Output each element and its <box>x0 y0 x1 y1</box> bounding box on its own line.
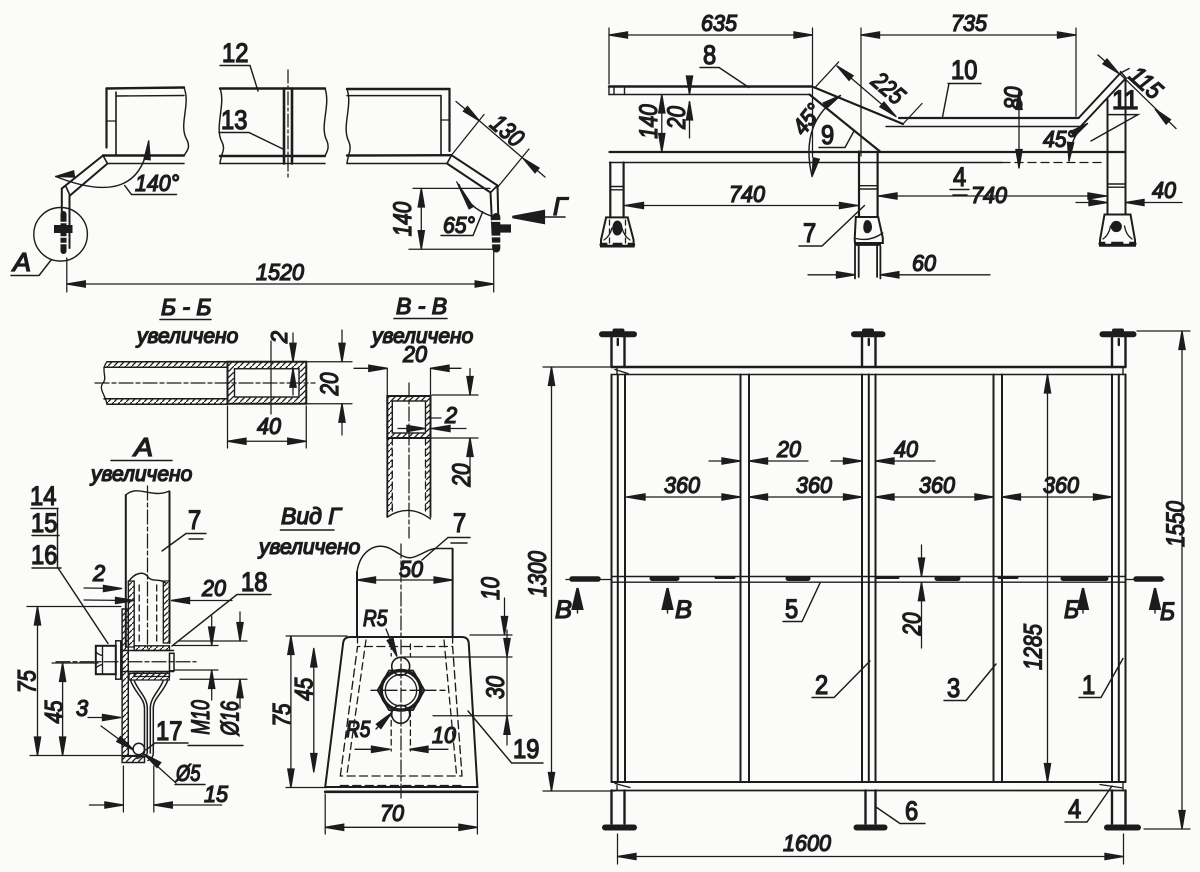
svg-text:Г: Г <box>553 193 569 221</box>
svg-text:11: 11 <box>1112 85 1138 115</box>
svg-text:20: 20 <box>201 575 226 601</box>
svg-text:R5: R5 <box>363 605 388 631</box>
svg-text:6: 6 <box>905 796 918 826</box>
svg-text:60: 60 <box>912 250 936 276</box>
svg-text:40: 40 <box>894 436 918 462</box>
svg-text:2: 2 <box>92 560 105 586</box>
svg-text:20: 20 <box>316 372 344 396</box>
svg-text:635: 635 <box>701 10 737 36</box>
svg-text:3: 3 <box>76 695 88 721</box>
svg-text:Вид Г: Вид Г <box>281 503 342 529</box>
svg-text:A: A <box>11 247 31 277</box>
svg-text:40: 40 <box>1152 177 1176 203</box>
svg-text:15: 15 <box>204 781 228 807</box>
svg-text:740: 740 <box>729 181 765 207</box>
svg-text:5: 5 <box>785 594 798 624</box>
svg-text:10: 10 <box>432 722 456 748</box>
svg-text:1550: 1550 <box>1162 501 1190 547</box>
svg-text:4: 4 <box>953 162 966 192</box>
svg-text:1: 1 <box>1082 670 1095 700</box>
svg-text:1600: 1600 <box>783 830 831 856</box>
svg-text:735: 735 <box>951 10 987 36</box>
svg-text:В - В: В - В <box>396 293 447 319</box>
svg-text:А: А <box>132 432 153 462</box>
svg-text:40: 40 <box>257 413 281 439</box>
svg-text:45: 45 <box>290 678 318 701</box>
svg-text:1285: 1285 <box>1020 624 1048 670</box>
svg-text:20: 20 <box>899 612 927 636</box>
svg-text:2: 2 <box>815 670 828 700</box>
svg-text:Ø5: Ø5 <box>175 760 200 786</box>
svg-text:740: 740 <box>971 182 1007 208</box>
svg-text:140: 140 <box>635 104 663 139</box>
svg-text:Ø16: Ø16 <box>217 701 245 736</box>
svg-text:360: 360 <box>919 472 955 498</box>
svg-text:Б - Б: Б - Б <box>161 294 211 320</box>
svg-text:140°: 140° <box>135 170 179 196</box>
svg-text:17: 17 <box>156 716 182 746</box>
svg-text:2: 2 <box>266 331 292 344</box>
svg-text:30: 30 <box>482 676 510 699</box>
svg-text:увеличено: увеличено <box>89 463 193 486</box>
svg-text:70: 70 <box>380 800 404 826</box>
svg-text:16: 16 <box>31 540 57 570</box>
svg-text:увеличено: увеличено <box>257 536 361 559</box>
svg-text:12: 12 <box>222 38 248 68</box>
svg-text:20: 20 <box>776 436 801 462</box>
svg-text:Б: Б <box>1160 598 1175 626</box>
svg-text:10: 10 <box>477 577 505 600</box>
svg-text:360: 360 <box>1043 472 1079 498</box>
svg-text:В: В <box>555 596 572 624</box>
svg-text:75: 75 <box>14 670 42 693</box>
svg-text:360: 360 <box>664 472 700 498</box>
svg-text:15: 15 <box>31 508 57 538</box>
svg-text:4: 4 <box>1068 794 1081 824</box>
svg-text:19: 19 <box>513 734 539 764</box>
svg-text:увеличено: увеличено <box>135 325 239 348</box>
svg-text:13: 13 <box>221 105 247 135</box>
svg-text:R5: R5 <box>346 716 371 742</box>
svg-text:В: В <box>675 596 692 624</box>
svg-text:8: 8 <box>703 40 716 70</box>
svg-text:45: 45 <box>41 700 69 723</box>
svg-text:1300: 1300 <box>524 551 552 597</box>
svg-text:50: 50 <box>399 556 423 582</box>
svg-text:45°: 45° <box>1043 126 1075 152</box>
svg-text:Б: Б <box>1064 596 1079 624</box>
svg-text:7: 7 <box>803 218 816 248</box>
svg-text:20: 20 <box>663 106 691 130</box>
svg-text:M10: M10 <box>187 700 215 735</box>
svg-text:2: 2 <box>444 402 457 428</box>
svg-text:14: 14 <box>30 481 56 511</box>
svg-text:10: 10 <box>951 55 977 85</box>
svg-text:360: 360 <box>796 472 832 498</box>
svg-text:20: 20 <box>402 341 427 367</box>
svg-text:7: 7 <box>188 505 201 535</box>
svg-text:140: 140 <box>389 202 417 237</box>
svg-text:65°: 65° <box>443 212 475 238</box>
svg-text:9: 9 <box>821 120 834 150</box>
svg-text:3: 3 <box>947 673 960 703</box>
svg-text:20: 20 <box>448 463 476 487</box>
svg-text:80: 80 <box>1000 86 1028 109</box>
svg-text:75: 75 <box>268 703 296 726</box>
svg-text:1520: 1520 <box>256 259 304 285</box>
svg-text:18: 18 <box>241 567 267 597</box>
svg-text:7: 7 <box>453 508 466 538</box>
